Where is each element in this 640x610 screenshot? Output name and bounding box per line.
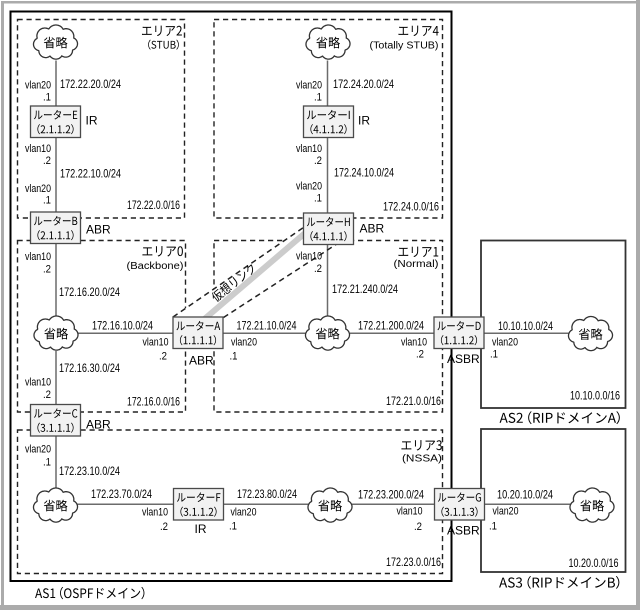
svg-text:172.24.0.0/16: 172.24.0.0/16	[383, 200, 439, 214]
svg-text:.2: .2	[160, 521, 168, 533]
svg-text:vlan10: vlan10	[397, 506, 423, 518]
svg-text:vlan20: vlan20	[296, 80, 322, 92]
svg-text:IR: IR	[358, 114, 370, 128]
svg-text:.1: .1	[43, 92, 51, 104]
svg-text:172.24.10.0/24: 172.24.10.0/24	[334, 166, 394, 180]
svg-text:IR: IR	[195, 522, 207, 536]
svg-text:10.10.10.0/24: 10.10.10.0/24	[498, 319, 553, 333]
svg-text:vlan10: vlan10	[296, 143, 322, 155]
svg-text:172.23.200.0/24: 172.23.200.0/24	[358, 488, 424, 502]
svg-text:.1: .1	[314, 92, 322, 104]
svg-text:10.20.0.0/16: 10.20.0.0/16	[569, 556, 619, 570]
svg-text:vlan10: vlan10	[25, 251, 51, 263]
svg-text:(Totally STUB): (Totally STUB)	[370, 41, 439, 52]
svg-text:172.21.200.0/24: 172.21.200.0/24	[358, 319, 424, 333]
svg-text:.1: .1	[229, 521, 237, 533]
svg-text:.2: .2	[416, 349, 424, 361]
svg-text:.2: .2	[43, 264, 51, 276]
svg-text:172.22.20.0/24: 172.22.20.0/24	[60, 77, 121, 91]
svg-text:ABR: ABR	[86, 418, 111, 432]
svg-text:172.16.20.0/24: 172.16.20.0/24	[59, 285, 120, 299]
svg-text:10.20.10.0/24: 10.20.10.0/24	[497, 488, 553, 502]
svg-text:vlan20: vlan20	[493, 506, 519, 518]
svg-text:.2: .2	[314, 155, 322, 167]
svg-text:vlan10: vlan10	[25, 143, 51, 155]
svg-text:172.22.10.0/24: 172.22.10.0/24	[60, 167, 121, 181]
svg-text:(NSSA): (NSSA)	[402, 454, 442, 465]
svg-text:.2: .2	[43, 389, 51, 401]
svg-text:172.21.10.0/24: 172.21.10.0/24	[237, 319, 297, 333]
svg-text:vlan10: vlan10	[401, 337, 427, 349]
svg-text:ABR: ABR	[86, 223, 111, 237]
svg-text:vlan10: vlan10	[142, 507, 168, 519]
svg-text:.1: .1	[490, 349, 498, 361]
svg-text:vlan20: vlan20	[25, 444, 51, 456]
svg-text:.2: .2	[43, 155, 51, 167]
svg-text:.2: .2	[159, 351, 167, 363]
svg-text:ABR: ABR	[360, 222, 385, 236]
svg-text:vlan10: vlan10	[25, 377, 51, 389]
svg-text:172.23.80.0/24: 172.23.80.0/24	[237, 487, 297, 501]
svg-text:.1: .1	[43, 195, 51, 207]
svg-text:ASBR: ASBR	[447, 524, 480, 538]
svg-text:.2: .2	[414, 521, 422, 533]
svg-text:172.16.30.0/24: 172.16.30.0/24	[59, 361, 120, 375]
svg-text:.1: .1	[230, 351, 238, 363]
svg-text:ASBR: ASBR	[447, 352, 480, 366]
svg-text:(Backbone): (Backbone)	[127, 261, 184, 272]
svg-text:vlan10: vlan10	[143, 337, 169, 349]
svg-text:172.21.240.0/24: 172.21.240.0/24	[332, 282, 398, 296]
svg-text:vlan20: vlan20	[296, 181, 322, 193]
svg-text:.2: .2	[314, 263, 322, 275]
svg-text:172.24.20.0/24: 172.24.20.0/24	[333, 77, 394, 91]
svg-text:vlan20: vlan20	[231, 337, 257, 349]
svg-text:10.10.0.0/16: 10.10.0.0/16	[570, 389, 620, 403]
svg-text:vlan10: vlan10	[296, 251, 322, 263]
svg-text:172.16.10.0/24: 172.16.10.0/24	[92, 319, 153, 333]
svg-text:IR: IR	[86, 114, 98, 128]
svg-text:ABR: ABR	[189, 354, 214, 368]
svg-text:172.23.10.0/24: 172.23.10.0/24	[59, 464, 120, 478]
svg-text:172.22.0.0/16: 172.22.0.0/16	[127, 198, 180, 212]
svg-text:vlan20: vlan20	[231, 506, 257, 518]
svg-text:vlan20: vlan20	[25, 183, 51, 195]
svg-text:.1: .1	[43, 457, 51, 469]
svg-text:172.23.70.0/24: 172.23.70.0/24	[91, 487, 152, 501]
svg-text:vlan20: vlan20	[492, 337, 518, 349]
svg-text:172.16.0.0/16: 172.16.0.0/16	[127, 395, 180, 409]
svg-text:172.21.0.0/16: 172.21.0.0/16	[386, 394, 441, 408]
svg-text:.1: .1	[489, 521, 497, 533]
svg-text:.1: .1	[314, 193, 322, 205]
svg-text:(Normal): (Normal)	[394, 259, 439, 270]
svg-text:172.23.0.0/16: 172.23.0.0/16	[386, 555, 441, 569]
svg-text:vlan20: vlan20	[25, 80, 51, 92]
